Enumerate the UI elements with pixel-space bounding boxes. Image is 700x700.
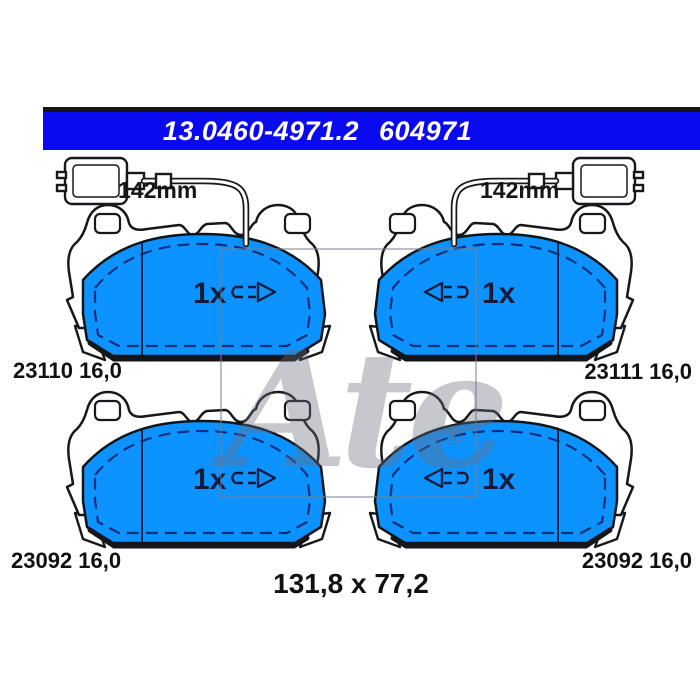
quantity-label: 1x xyxy=(482,277,516,310)
pad-id-label-bottom-left: 23092 16,0 xyxy=(11,548,121,574)
dimensions-label: 131,8 x 77,2 xyxy=(273,568,429,600)
pad-id-label-top-left: 23110 16,0 xyxy=(13,358,122,384)
pad-id-label-bottom-right: 23092 16,0 xyxy=(582,548,692,574)
quantity-label: 1x xyxy=(482,463,516,496)
quantity-label: 1x xyxy=(193,463,227,496)
product-image: 13.0460-4971.2 604971 142mm 1x 142mm 1x … xyxy=(0,0,700,700)
pad-diagram-bottom-left: 1x xyxy=(55,384,355,554)
pad-diagram-top-right: 142mm 1x xyxy=(345,140,645,380)
sensor-length-label: 142mm xyxy=(480,177,559,203)
sensor-length-label: 142mm xyxy=(118,177,197,203)
pad-id-label-top-right: 23111 16,0 xyxy=(584,359,692,385)
pad-diagram-top-left: 142mm 1x xyxy=(55,140,355,380)
pad-diagram-bottom-right: 1x xyxy=(345,384,645,554)
quantity-label: 1x xyxy=(193,277,227,310)
